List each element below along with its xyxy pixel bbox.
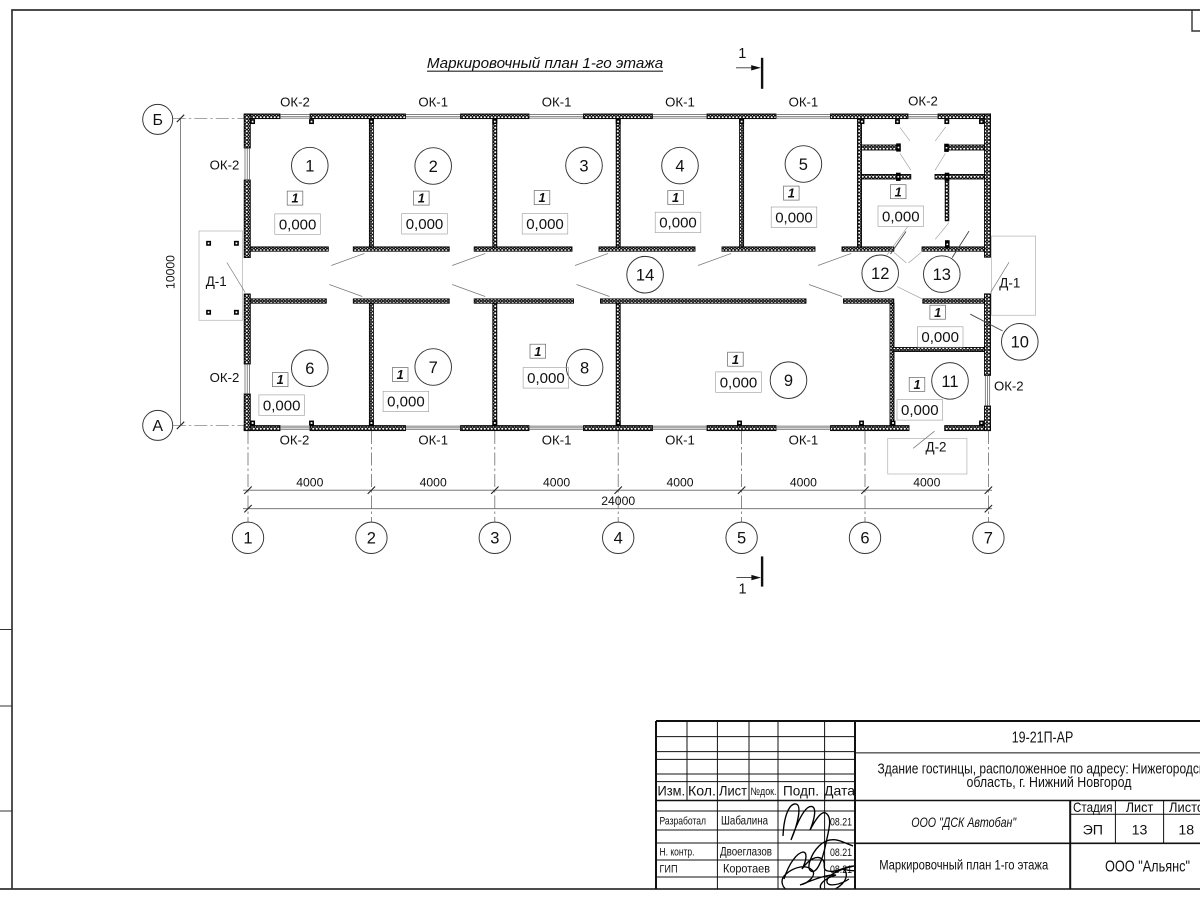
svg-text:Маркировочный план 1-го этажа: Маркировочный план 1-го этажа <box>427 55 663 72</box>
svg-text:Листов: Листов <box>1169 799 1200 815</box>
svg-text:ОК-2: ОК-2 <box>280 95 310 110</box>
svg-text:1: 1 <box>895 184 902 199</box>
svg-text:1: 1 <box>291 191 298 206</box>
svg-text:ОК-1: ОК-1 <box>542 433 572 448</box>
svg-text:08.21: 08.21 <box>830 847 852 859</box>
svg-text:Коротаев: Коротаев <box>723 862 770 876</box>
svg-text:4000: 4000 <box>296 475 323 489</box>
svg-text:19-21П-АР: 19-21П-АР <box>1012 730 1074 747</box>
svg-text:1: 1 <box>534 344 541 359</box>
svg-text:4: 4 <box>675 158 684 176</box>
svg-text:3: 3 <box>579 157 588 175</box>
svg-text:ООО "Альянс": ООО "Альянс" <box>1105 859 1190 876</box>
svg-text:1: 1 <box>397 367 404 382</box>
svg-text:ОК-2: ОК-2 <box>994 379 1024 394</box>
svg-text:ООО "ДСК Автобан": ООО "ДСК Автобан" <box>911 814 1017 830</box>
svg-text:2: 2 <box>429 158 438 176</box>
svg-text:10000: 10000 <box>164 255 178 289</box>
svg-text:3: 3 <box>490 530 499 548</box>
svg-text:А: А <box>152 418 163 435</box>
svg-text:Н. контр.: Н. контр. <box>660 847 695 859</box>
svg-text:Изм.: Изм. <box>658 783 686 799</box>
svg-text:08.21: 08.21 <box>830 817 852 829</box>
svg-text:0,000: 0,000 <box>527 370 565 387</box>
svg-text:1: 1 <box>672 190 679 205</box>
svg-text:1: 1 <box>788 186 795 201</box>
svg-text:1: 1 <box>738 46 746 62</box>
svg-text:0,000: 0,000 <box>279 216 317 233</box>
svg-text:ОК-2: ОК-2 <box>280 433 310 448</box>
svg-text:ОК-1: ОК-1 <box>418 95 448 110</box>
svg-text:ОК-2: ОК-2 <box>908 94 938 109</box>
svg-text:4000: 4000 <box>790 475 817 489</box>
svg-text:ОК-1: ОК-1 <box>665 433 695 448</box>
svg-text:Б: Б <box>152 112 163 129</box>
svg-text:Кол.: Кол. <box>688 783 716 799</box>
svg-text:6: 6 <box>305 360 314 378</box>
svg-text:7: 7 <box>429 359 438 377</box>
svg-text:ОК-1: ОК-1 <box>418 433 448 448</box>
svg-text:1: 1 <box>305 158 314 176</box>
svg-text:Двоеглазов: Двоеглазов <box>720 845 772 859</box>
svg-text:5: 5 <box>737 530 746 548</box>
svg-text:Лист: Лист <box>1126 799 1154 815</box>
svg-text:4000: 4000 <box>666 475 693 489</box>
svg-text:0,000: 0,000 <box>901 402 939 419</box>
svg-text:ОК-1: ОК-1 <box>665 95 695 110</box>
svg-text:13: 13 <box>933 266 951 284</box>
svg-text:9: 9 <box>784 372 793 390</box>
svg-text:ОК-1: ОК-1 <box>789 95 819 110</box>
svg-text:№док.: №док. <box>751 786 777 798</box>
svg-text:ЭП: ЭП <box>1083 823 1103 839</box>
svg-text:1: 1 <box>934 305 941 320</box>
svg-text:ОК-2: ОК-2 <box>210 370 240 385</box>
svg-text:1: 1 <box>418 191 425 206</box>
svg-text:13: 13 <box>1132 823 1148 839</box>
svg-text:1: 1 <box>913 377 920 392</box>
svg-text:4: 4 <box>614 530 623 548</box>
svg-text:ОК-2: ОК-2 <box>210 158 240 173</box>
svg-text:ОК-1: ОК-1 <box>789 433 819 448</box>
svg-text:11: 11 <box>941 373 958 391</box>
svg-text:Разработал: Разработал <box>660 816 707 828</box>
svg-text:Дата: Дата <box>824 783 855 799</box>
svg-text:4000: 4000 <box>543 475 570 489</box>
svg-text:0,000: 0,000 <box>659 215 697 232</box>
svg-text:1: 1 <box>732 352 739 367</box>
svg-text:18: 18 <box>1178 823 1194 839</box>
svg-text:0,000: 0,000 <box>882 208 920 225</box>
svg-text:6: 6 <box>860 530 869 548</box>
svg-text:ГИП: ГИП <box>660 864 678 876</box>
svg-text:Д-1: Д-1 <box>999 276 1020 291</box>
svg-text:4000: 4000 <box>913 475 940 489</box>
svg-text:1: 1 <box>538 190 545 205</box>
svg-text:5: 5 <box>799 156 808 174</box>
svg-text:0,000: 0,000 <box>406 216 444 233</box>
svg-text:0,000: 0,000 <box>387 394 425 411</box>
svg-text:ОК-1: ОК-1 <box>542 95 572 110</box>
svg-text:0,000: 0,000 <box>921 329 959 346</box>
svg-text:10: 10 <box>1011 334 1029 352</box>
svg-text:12: 12 <box>871 265 889 283</box>
svg-text:14: 14 <box>636 267 654 285</box>
svg-text:Подп.: Подп. <box>783 783 819 799</box>
svg-text:2: 2 <box>367 530 376 548</box>
svg-text:0,000: 0,000 <box>720 374 758 391</box>
svg-text:24000: 24000 <box>601 494 635 508</box>
svg-text:7: 7 <box>984 530 993 548</box>
svg-text:0,000: 0,000 <box>526 216 564 233</box>
svg-text:Шабалина: Шабалина <box>721 814 768 828</box>
svg-text:1: 1 <box>243 530 252 548</box>
svg-text:Маркировочный план 1-го этажа: Маркировочный план 1-го этажа <box>879 856 1048 872</box>
svg-text:Д-2: Д-2 <box>926 440 947 455</box>
svg-text:1: 1 <box>277 372 284 387</box>
svg-text:область, г. Нижний Новгород: область, г. Нижний Новгород <box>967 774 1132 791</box>
svg-text:Д-1: Д-1 <box>206 274 227 289</box>
svg-text:8: 8 <box>580 359 589 377</box>
svg-text:0,000: 0,000 <box>775 209 813 226</box>
svg-text:0,000: 0,000 <box>263 397 301 414</box>
svg-text:1: 1 <box>739 581 747 597</box>
svg-text:Стадия: Стадия <box>1073 799 1113 815</box>
svg-text:4000: 4000 <box>420 475 447 489</box>
svg-text:Лист: Лист <box>719 783 748 799</box>
